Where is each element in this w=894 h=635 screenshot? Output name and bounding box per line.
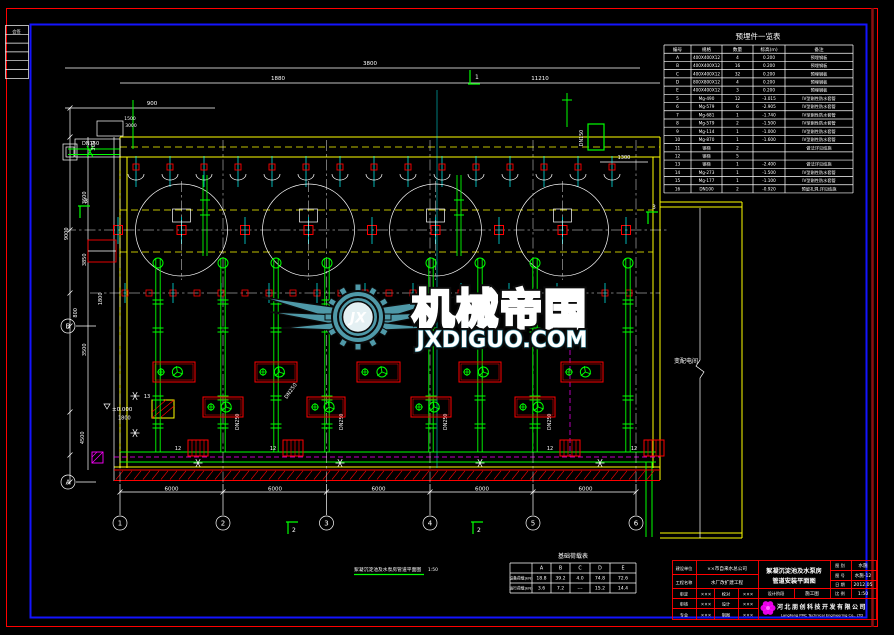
- role-label: 制图: [722, 612, 730, 619]
- pipe-bell: [475, 258, 485, 268]
- pump-flange-cross: [565, 368, 573, 376]
- fig-type-label: 图 别: [835, 562, 845, 569]
- hatch-stroke: [395, 471, 402, 480]
- ladder: [283, 440, 303, 456]
- load-table-cell: ---: [578, 587, 583, 592]
- pipe-bell: [623, 258, 633, 268]
- dim-left: 3500: [82, 343, 88, 356]
- parts-table-cell: IV型刚性防水套管: [802, 95, 835, 102]
- parts-table-cell: Mg-490: [699, 96, 715, 101]
- role-signature: ×××: [743, 602, 754, 607]
- dim-upper-left: 1880: [271, 76, 285, 82]
- dim-top: 3800: [363, 61, 377, 67]
- parts-table-header: 标高(m): [760, 46, 777, 53]
- parts-table-cell: 3: [736, 88, 739, 93]
- parts-table-cell: 2: [736, 121, 739, 126]
- ladder-label: 12: [631, 446, 637, 452]
- project-label: 工程名称: [676, 579, 693, 586]
- parts-table-cell: A: [676, 55, 679, 60]
- stage-value: 施工图: [805, 590, 819, 597]
- scale-value: 1:50: [858, 591, 868, 597]
- hatch-stroke: [593, 471, 600, 480]
- parts-table-cell: IV型刚性防水套管: [802, 103, 835, 110]
- role-signature: ×××: [743, 592, 754, 597]
- load-table-cell: 39.2: [555, 576, 565, 582]
- pipe-bell: [153, 258, 163, 268]
- parts-table-cell: IV型刚性防水套管: [802, 177, 835, 184]
- parts-table-header: 备注: [814, 46, 824, 53]
- hatch-stroke: [422, 471, 429, 480]
- pump-blade: [581, 372, 586, 376]
- hatch-stroke: [296, 471, 303, 480]
- parts-table-cell: 10: [675, 137, 681, 142]
- hatch-stroke: [332, 471, 339, 480]
- hatch-stroke: [485, 471, 492, 480]
- plan-drawing: 会签: [0, 0, 894, 635]
- company-logo-icon: [761, 601, 776, 615]
- grid-bubble-label: 3: [324, 520, 328, 528]
- parts-table-cell: Mg-579: [699, 104, 715, 109]
- hatch-stroke: [341, 471, 348, 480]
- role-label: 专业: [680, 612, 688, 619]
- parts-table-header: 规格: [702, 46, 712, 53]
- column-row-top: [128, 156, 620, 187]
- parts-table-cell: 15: [675, 178, 681, 183]
- pump-flange-cross: [259, 368, 267, 376]
- parts-table-cell: 400X400X12: [693, 55, 720, 60]
- parts-table-cell: 1: [736, 170, 739, 175]
- pump-blade: [173, 372, 178, 376]
- hatch-stroke: [143, 471, 150, 480]
- project-value: 水厂改扩建工程: [711, 579, 744, 586]
- sump-hatch: [92, 452, 103, 463]
- parts-table-cell: 钢梯: [702, 161, 710, 168]
- parts-table-cell: -2.400: [762, 162, 776, 167]
- hatch-stroke: [476, 471, 483, 480]
- elevation-dim: 1800: [118, 416, 131, 422]
- hatch-stroke: [575, 471, 582, 480]
- logo-monogram: JX: [347, 311, 367, 327]
- parts-table-cell: 钢梯: [702, 152, 710, 159]
- section-marker-2b-label: 2: [477, 527, 481, 534]
- hatch-stroke: [620, 471, 627, 480]
- parts-table-cell: 4: [736, 80, 739, 85]
- parts-table-cell: E: [676, 88, 679, 93]
- ladders: 12121212: [175, 440, 664, 456]
- parts-table-cell: D: [676, 80, 679, 85]
- dim-small-1: 1500: [124, 116, 136, 122]
- drain-symbol: [131, 392, 140, 400]
- hatch-stroke: [134, 471, 141, 480]
- client-label: 建设单位: [676, 565, 693, 572]
- block-drawing-title-2: 管道安装平面图: [772, 577, 815, 585]
- role-label: 设计: [722, 601, 730, 608]
- role-signature: ×××: [701, 602, 712, 607]
- ladder-label: 12: [547, 446, 553, 452]
- watermark-domain: JXDIGUO.COM: [415, 328, 588, 353]
- drain-symbol: [476, 459, 485, 467]
- hatch-stroke: [224, 471, 231, 480]
- hatch-stroke: [467, 471, 474, 480]
- caption-scale: 1:50: [428, 567, 438, 573]
- section-marker-3a-label: 3: [84, 198, 88, 205]
- dim-bottom: 6000: [268, 486, 282, 492]
- hatch-stroke: [494, 471, 501, 480]
- parts-table-cell: -0.920: [762, 186, 776, 191]
- load-table-cell: 4.0: [576, 576, 583, 582]
- foundation-load-table: 基础荷载表 ABCDE设备荷载(kN)18.839.24.074.872.6运行…: [509, 552, 636, 593]
- parts-table-cell: 1: [736, 178, 739, 183]
- hatch-stroke: [539, 471, 546, 480]
- hatch-stroke: [458, 471, 465, 480]
- hatch-stroke: [287, 471, 294, 480]
- parts-table-cell: 1: [736, 112, 739, 117]
- hatch-stroke: [161, 471, 168, 480]
- load-table-title: 基础荷载表: [558, 552, 588, 560]
- hatch-stroke: [449, 471, 456, 480]
- role-label: 校对: [722, 591, 730, 598]
- role-signatures: 审定×××校对×××审核×××设计×××专业×××制图×××: [680, 591, 753, 619]
- annex-break-line: [696, 208, 704, 538]
- dim-bottom: 6000: [372, 486, 386, 492]
- discharge-header: [114, 452, 660, 537]
- load-table-cell: 3.6: [538, 586, 545, 592]
- pipe-bell: [322, 258, 332, 268]
- elevation-label: ±0.000: [112, 407, 133, 413]
- role-signature: ×××: [701, 592, 712, 597]
- pump-flange-cross: [207, 403, 215, 411]
- grid-bubble-label: 6: [634, 520, 639, 528]
- hatch-stroke: [521, 471, 528, 480]
- parts-table-cell: 1: [736, 129, 739, 134]
- parts-table-cell: 16: [735, 63, 741, 68]
- parts-table-cell: 预留孔洞,详见结施: [802, 185, 838, 192]
- parts-table-cell: 1: [736, 162, 739, 167]
- parts-table-cell: 32: [735, 71, 741, 76]
- load-table-header: B: [559, 566, 562, 572]
- hatch-stroke: [152, 471, 159, 480]
- drain-symbol: [194, 459, 203, 467]
- hatch-stroke: [566, 471, 573, 480]
- load-table-cell: 14.4: [618, 586, 628, 592]
- load-table-cell: 74.8: [595, 576, 605, 582]
- hatch-stroke: [350, 471, 357, 480]
- parts-table-cell: 做法详见结施: [806, 144, 832, 151]
- parts-table-cell: -1.500: [762, 170, 776, 175]
- load-table-header: D: [598, 566, 602, 572]
- role-label: 审定: [680, 591, 688, 598]
- dim-bottom: 6000: [475, 486, 489, 492]
- parts-table-cell: 14: [675, 170, 681, 175]
- caption-text: 絮凝沉淀池及水泵房管道平面图: [354, 566, 421, 573]
- pipe-bell: [426, 258, 436, 268]
- parts-table-cell: 1: [736, 137, 739, 142]
- title-block: 建设单位 ××市自来水总公司 工程名称 水厂改扩建工程 审定×××校对×××审核…: [672, 560, 877, 620]
- hatch-stroke: [206, 471, 213, 480]
- parts-table-cell: Mg-870: [699, 137, 715, 142]
- dim-left: 3850: [82, 253, 88, 266]
- discharge-pipe-label: DN250: [284, 382, 299, 400]
- parts-table-cell: Mg-681: [699, 112, 715, 117]
- hatch-stroke: [530, 471, 537, 480]
- load-table-header: E: [621, 566, 624, 572]
- pump-flange-cross: [415, 403, 423, 411]
- dim-bottom: 6000: [165, 486, 179, 492]
- company-name: 河北朋创科技开发有限公司: [777, 603, 867, 611]
- hatch-stroke: [584, 471, 591, 480]
- load-table-header: C: [578, 566, 582, 572]
- parts-table-cell: 预埋钢板: [811, 54, 829, 61]
- parts-table-cell: -1.740: [762, 112, 776, 117]
- load-table-cell: 15.2: [595, 586, 605, 592]
- hatch-stroke: [170, 471, 177, 480]
- stair-label: 13: [144, 394, 150, 400]
- hatch-stroke: [431, 471, 438, 480]
- parts-table-cell: 0.200: [763, 63, 775, 68]
- company-name-en: LangFang PMC Technical Engineering Co., …: [781, 614, 863, 618]
- suction-pipe-label: DN250: [235, 414, 241, 430]
- parts-table-cell: Mg-273: [699, 170, 715, 175]
- parts-table-cell: IV型刚性防水套管: [802, 169, 835, 176]
- pump-blade: [377, 372, 382, 376]
- parts-table-cell: 11: [675, 145, 681, 150]
- fig-type-value: 水施: [858, 562, 868, 569]
- dim-upper-right: 11210: [531, 76, 549, 82]
- cad-sheet: 会签: [0, 0, 894, 635]
- load-table-cell: 18.8: [536, 576, 546, 582]
- watermark: JX 机械帝国 机械帝国 JXDIGUO.COM JXDIGUO.COM: [262, 284, 588, 353]
- block-drawing-title-1: 絮凝沉淀池及水泵房: [766, 567, 822, 575]
- suction-pipe-label: DN250: [443, 414, 449, 430]
- parts-table-cell: Mg-114: [699, 129, 715, 134]
- pump-blade: [275, 372, 280, 376]
- hatch-stroke: [512, 471, 519, 480]
- parts-table-cell: 钢梯: [702, 144, 710, 151]
- hatch-stroke: [260, 471, 267, 480]
- hatch-stroke: [179, 471, 186, 480]
- hatch-stroke: [377, 471, 384, 480]
- load-table-cell: 设备荷载(kN): [509, 575, 533, 580]
- stage-label: 设计阶段: [768, 590, 786, 597]
- section-marker-3b: [646, 212, 658, 224]
- parts-table-cell: 400X400X12: [693, 63, 720, 68]
- parts-table-cell: 预埋钢板: [811, 79, 829, 86]
- section-marker-2a-label: 2: [292, 527, 296, 534]
- role-label: 审核: [680, 601, 689, 608]
- parts-table-cell: 12: [735, 96, 741, 101]
- hatch-stroke: [116, 471, 123, 480]
- parts-table-cell: 6: [736, 104, 739, 109]
- parts-table-cell: -1.600: [762, 137, 776, 142]
- parts-table-title: 预埋件一览表: [736, 31, 781, 41]
- hatch-stroke: [404, 471, 411, 480]
- flower-center: [766, 606, 770, 610]
- fig-no-label: 图 号: [835, 573, 845, 579]
- role-signature: ×××: [743, 613, 754, 618]
- parts-table-cell: 400X400X12: [693, 71, 720, 76]
- hatch-stroke: [386, 471, 393, 480]
- suction-pipe-label: DN250: [339, 414, 345, 430]
- parts-table-cell: 9: [676, 129, 679, 134]
- load-table-cell: 7.2: [557, 586, 564, 592]
- parts-table-cell: 做法详见结施: [806, 161, 832, 168]
- ladder-label: 12: [270, 446, 276, 452]
- parts-table-cell: 2: [736, 186, 739, 191]
- pump-flange-cross: [361, 368, 369, 376]
- parts-table-cell: -3.015: [762, 96, 776, 101]
- date-label: 日 期: [835, 582, 845, 588]
- parts-table-cell: 16: [675, 186, 681, 191]
- clarifier-tanks: [114, 181, 631, 280]
- parts-table-cell: 预埋钢板: [811, 70, 829, 77]
- pump-flange-cross: [311, 403, 319, 411]
- parts-table-cell: 7: [676, 112, 679, 117]
- embedded-parts-table: 预埋件一览表 编号规格数量标高(m)备注A400X400X1240.200预埋钢…: [664, 31, 853, 193]
- parts-table-cell: 2: [736, 145, 739, 150]
- hatch-stroke: [251, 471, 258, 480]
- hatch-stroke: [602, 471, 609, 480]
- parts-table-cell: IV型刚性防水套管: [802, 128, 835, 135]
- parts-table-cell: 预埋钢板: [811, 87, 829, 94]
- grid-bubble-label: 4: [428, 520, 433, 528]
- parts-table-cell: -2.905: [762, 104, 776, 109]
- pump-flange-cross: [519, 403, 527, 411]
- parts-table-cell: IV型刚性防水套管: [802, 120, 835, 127]
- hatch-stroke: [557, 471, 564, 480]
- hatch-stroke: [413, 471, 420, 480]
- hatch-stroke: [611, 471, 618, 480]
- dim-right: 1300: [618, 155, 631, 161]
- ladder: [188, 440, 208, 456]
- hatch-stroke: [269, 471, 276, 480]
- dim-left: 1800: [98, 292, 104, 305]
- wall-hatch: [116, 471, 654, 480]
- parts-table-cell: 400X400X12: [693, 88, 720, 93]
- parts-table-cell: Mg-579: [699, 121, 715, 126]
- hatch-stroke: [197, 471, 204, 480]
- hatch-stroke: [314, 471, 321, 480]
- casing-pipe-label: DN150: [579, 130, 585, 146]
- scale-label: 比 例: [835, 590, 845, 597]
- elevation-symbol: [104, 404, 110, 409]
- parts-table-cell: 800X800X12: [693, 80, 720, 85]
- room-label: 变配电间: [674, 357, 698, 365]
- dim-small-2: 3000: [125, 123, 137, 129]
- ladder-label: 12: [175, 446, 181, 452]
- hatch-stroke: [215, 471, 222, 480]
- hatch-stroke: [503, 471, 510, 480]
- platform-upper: [97, 121, 123, 136]
- hatch-stroke: [647, 471, 654, 480]
- parts-table-cell: C: [676, 71, 679, 76]
- parts-table-cell: -1.000: [762, 129, 776, 134]
- grid-bubble-label: 2: [221, 520, 225, 528]
- load-table-header: A: [540, 566, 544, 572]
- parts-table-cell: 0.200: [763, 55, 775, 60]
- parts-table-cell: -1.500: [762, 121, 776, 126]
- hatch-stroke: [548, 471, 555, 480]
- suction-pipe-label: DN250: [547, 414, 553, 430]
- hatch-stroke: [629, 471, 636, 480]
- parts-table-cell: 5: [676, 96, 679, 101]
- date-value: 2012.05: [854, 582, 873, 588]
- parts-table-cell: 12: [675, 153, 681, 158]
- parts-table-cell: -1.100: [762, 178, 776, 183]
- dim-left: 800: [73, 308, 79, 318]
- grid-bubble-label: 5: [531, 520, 535, 528]
- parts-table-cell: 0.200: [763, 88, 775, 93]
- parts-table-cell: DN100: [699, 186, 714, 191]
- hatch-stroke: [440, 471, 447, 480]
- parts-table-cell: 预埋钢板: [811, 62, 829, 69]
- parts-table-cell: 0.200: [763, 71, 775, 76]
- grid-bubble-label: 1: [118, 520, 122, 528]
- parts-table-cell: 8: [676, 121, 679, 126]
- hatch-stroke: [125, 471, 132, 480]
- inlet-pipe-label: DN150: [82, 141, 99, 147]
- ladder: [644, 440, 664, 456]
- dim-left: 4500: [80, 431, 86, 444]
- stair-hatch: [152, 400, 174, 418]
- client-value: ××市自来水总公司: [707, 565, 747, 572]
- pump-flange-cross: [157, 368, 165, 376]
- section-marker-1-label: 1: [475, 74, 479, 81]
- parts-table-header: 编号: [673, 46, 683, 53]
- hatch-stroke: [188, 471, 195, 480]
- parts-table-cell: IV型刚性防水套管: [802, 111, 835, 118]
- parts-table-cell: 5: [736, 153, 739, 158]
- parts-table-cell: 13: [675, 162, 681, 167]
- hatch-stroke: [305, 471, 312, 480]
- parts-table-header: 数量: [733, 46, 743, 53]
- role-signature: ×××: [701, 613, 712, 618]
- dim-platform: 900: [147, 101, 158, 107]
- drawing-caption: 絮凝沉淀池及水泵房管道平面图 1:50: [354, 566, 438, 575]
- load-table-cell: 运行荷载(kN): [509, 585, 533, 590]
- parts-table-cell: B: [676, 63, 679, 68]
- hatch-stroke: [359, 471, 366, 480]
- dim-left: 9000: [64, 227, 70, 240]
- pump-blade: [479, 372, 484, 376]
- hatch-stroke: [638, 471, 645, 480]
- parts-table-cell: 4: [736, 55, 739, 60]
- section-marker-3b-label: 3: [652, 204, 656, 211]
- hatch-stroke: [278, 471, 285, 480]
- drain-symbol: [131, 429, 140, 437]
- watermark-brand: 机械帝国: [412, 285, 588, 334]
- parts-table-cell: 6: [676, 104, 679, 109]
- drain-symbol: [596, 459, 605, 467]
- parts-table-cell: Mg-177: [699, 178, 715, 183]
- fig-no-value: 水施-12: [855, 572, 872, 579]
- hatch-stroke: [233, 471, 240, 480]
- drain-symbol: [336, 459, 345, 467]
- parts-table-cell: IV型刚性防水套管: [802, 136, 835, 143]
- hatch-stroke: [368, 471, 375, 480]
- dim-bottom: 6000: [579, 486, 593, 492]
- signoff-strip: 会签: [6, 26, 29, 79]
- load-table-cell: 72.6: [618, 576, 628, 582]
- hatch-stroke: [242, 471, 249, 480]
- pump-flange-cross: [463, 368, 471, 376]
- parts-table-cell: 0.200: [763, 80, 775, 85]
